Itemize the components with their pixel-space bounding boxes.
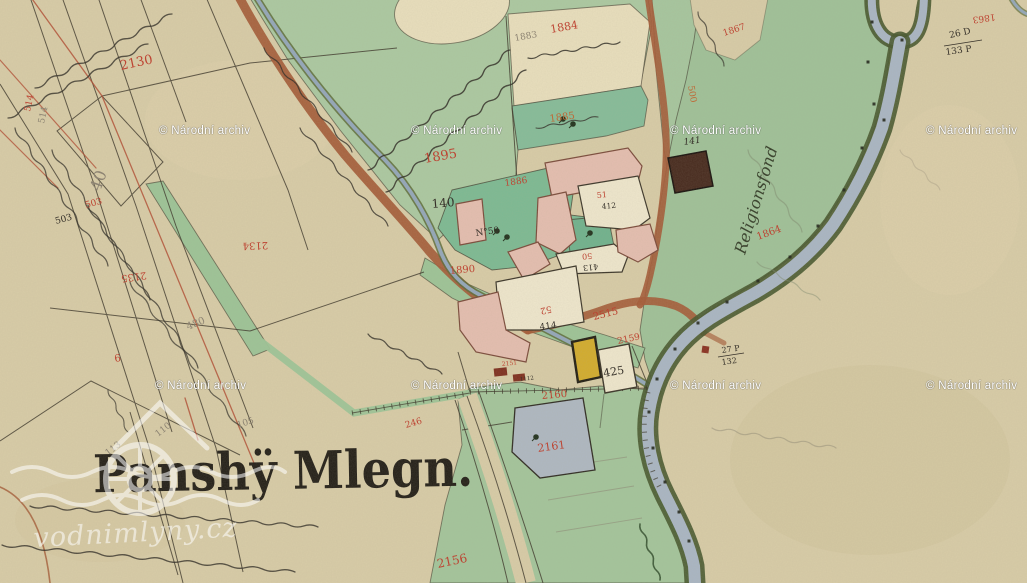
river-post-dot	[757, 280, 760, 283]
river-post-dot	[901, 39, 904, 42]
archive-watermark: © Národní archiv	[670, 125, 761, 137]
building-yellow	[572, 337, 601, 382]
archive-watermark: © Národní archiv	[926, 380, 1017, 392]
river-post-dot	[678, 511, 681, 514]
building-red-small-a	[494, 367, 508, 376]
river-post-dot	[789, 256, 792, 259]
river-post-dot	[652, 447, 655, 450]
parcel-label: 412	[601, 201, 616, 211]
parcel-label: 140	[431, 195, 455, 211]
parcel-label: 50	[582, 251, 593, 261]
river-post-dot	[697, 322, 700, 325]
archive-watermark: © Národní archiv	[155, 380, 246, 392]
archive-watermark: © Národní archiv	[411, 125, 502, 137]
river-post-dot	[664, 481, 667, 484]
parcel-label: 2160	[541, 389, 567, 402]
river-post-dot	[674, 348, 677, 351]
river-post-dot	[656, 378, 659, 381]
archive-watermark: © Národní archiv	[926, 125, 1017, 137]
river-post-dot	[688, 540, 691, 543]
river-post-dot	[861, 147, 864, 150]
river-post-dot	[867, 61, 870, 64]
river-post-dot	[648, 411, 651, 414]
river-post-dot	[843, 189, 846, 192]
building-dark-barn	[668, 151, 713, 193]
parcel-label: 51	[596, 190, 607, 200]
symbol-red-square	[701, 346, 709, 354]
parcel-label: 2134	[242, 239, 268, 251]
river-post-dot	[726, 301, 729, 304]
river-post-dot	[873, 103, 876, 106]
archive-watermark: © Národní archiv	[670, 380, 761, 392]
river-post-dot	[871, 21, 874, 24]
river-post-dot	[883, 119, 886, 122]
scanned-cadastral-map: 2130514514503503402134213548061051101132…	[0, 0, 1027, 583]
archive-watermark: © Národní archiv	[411, 380, 502, 392]
archive-watermark: © Národní archiv	[159, 125, 250, 137]
river-post-dot	[817, 225, 820, 228]
parcel-label: 413	[583, 262, 599, 272]
parcel-label: 1890	[449, 264, 475, 277]
